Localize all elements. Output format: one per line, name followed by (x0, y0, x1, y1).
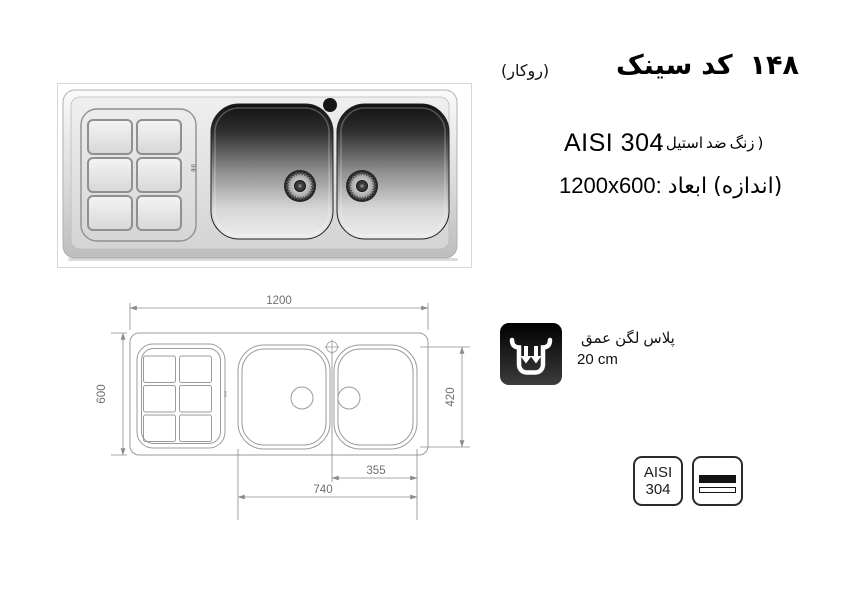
size-value: 1200x600: (559, 173, 662, 199)
aisi-304-badge: AISI 304 (633, 456, 683, 506)
size-line: 1200x600: ابعاد (اندازه) (559, 173, 782, 199)
drawing-brand-mark: IHI (223, 391, 228, 397)
size-label-word-1: ابعاد (668, 174, 707, 199)
steel-grade-label: AISI 304 (564, 129, 664, 158)
drawing-sink-outline (130, 333, 428, 455)
dim-double-bowl-width: 740 (313, 484, 332, 496)
steel-note-word-3: زنگ (730, 134, 755, 152)
drainboard (81, 109, 196, 241)
depth-word-2: لگن (615, 329, 639, 347)
dim-single-bowl-width: 355 (366, 465, 385, 477)
right-bowl (337, 104, 449, 239)
sink-photo-illustration: IHI (58, 84, 471, 267)
dim-overall-depth: 600 (96, 384, 108, 403)
dim-overall-width: 1200 (266, 295, 292, 307)
title-word-sink: سینک (616, 50, 692, 81)
drawing-right-bowl (334, 345, 417, 449)
right-drain-strainer (346, 170, 378, 202)
page-title: سینک کد ۱۴۸ (616, 50, 799, 81)
dim-bowl-depth: 420 (445, 387, 457, 406)
drawing-drainboard-grid (144, 356, 212, 442)
depth-word-1: عمق (581, 329, 611, 347)
badge-grade-line2: 304 (645, 481, 670, 498)
sheet-bar-thick (699, 475, 736, 483)
drawing-faucet-hole (325, 340, 340, 355)
left-drain-strainer (284, 170, 316, 202)
title-word-number: ۱۴۸ (750, 50, 799, 81)
technical-drawing: IHI 1200 600 420 355 740 (95, 290, 495, 525)
paren-close: ) (757, 134, 763, 152)
mount-type-label: (روکار) (501, 61, 549, 80)
title-word-code: کد (701, 50, 732, 81)
depth-feature-label: عمق لگن پلاس (581, 329, 675, 347)
depth-word-3: پلاس (643, 329, 674, 347)
steel-note-word-1: استیل (666, 134, 703, 152)
badge-grade-line1: AISI (644, 464, 672, 481)
depth-value: 20 cm (577, 351, 618, 368)
steel-sheet-icon (692, 456, 743, 506)
brand-mark: IHI (189, 164, 195, 172)
size-label-word-2: (اندازه) (713, 174, 782, 199)
left-bowl (211, 104, 333, 239)
spec-sheet-page: IHI (0, 0, 860, 606)
steel-note-word-2: ضد (706, 134, 727, 152)
faucet-hole (323, 98, 337, 112)
drawing-left-bowl (238, 345, 330, 449)
product-photo: IHI (57, 83, 472, 268)
steel-note: ( استیل ضد زنگ ) (657, 134, 763, 152)
bowl-depth-arrows-icon (500, 323, 562, 385)
paren-open: ( (657, 134, 663, 152)
sheet-bar-thin (699, 487, 736, 493)
